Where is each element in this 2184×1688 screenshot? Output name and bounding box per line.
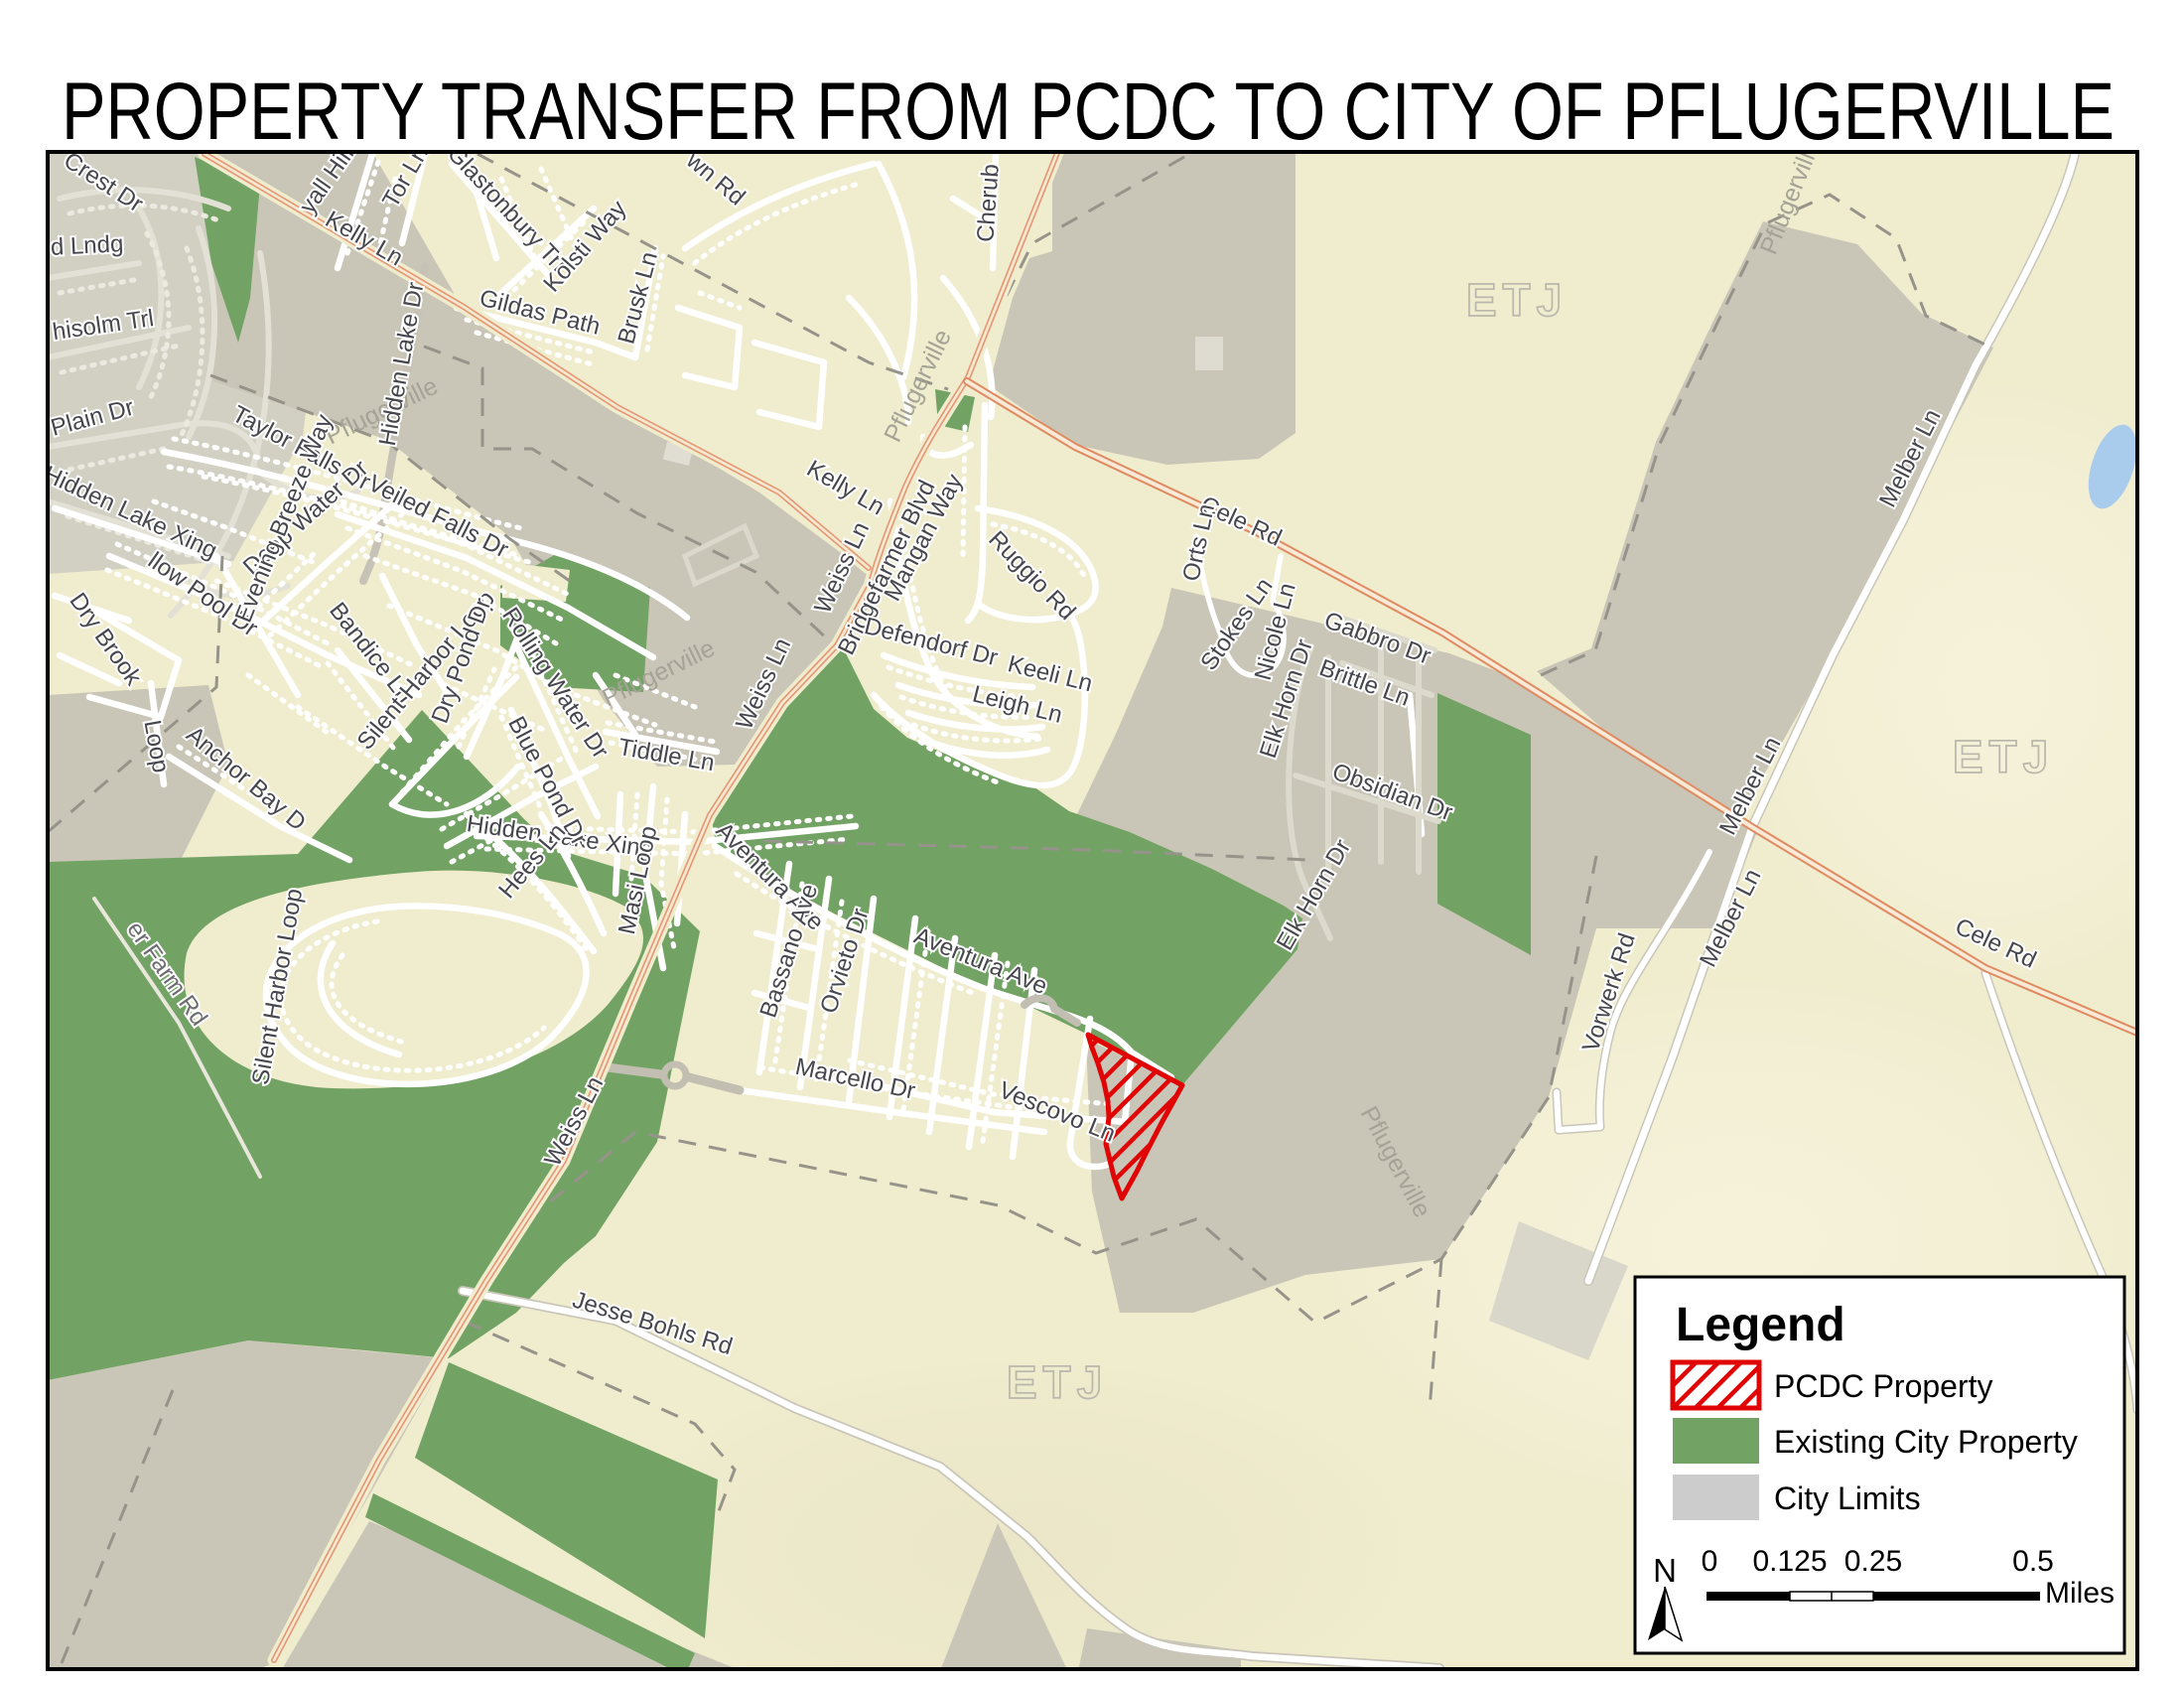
svg-text:ETJ: ETJ: [1466, 274, 1568, 326]
svg-text:PCDC Property: PCDC Property: [1774, 1368, 1993, 1404]
svg-text:0.5: 0.5: [2012, 1545, 2054, 1578]
svg-text:Cherub: Cherub: [972, 163, 1004, 242]
svg-text:Legend: Legend: [1676, 1299, 1845, 1351]
svg-text:ETJ: ETJ: [1007, 1356, 1108, 1408]
svg-text:Miles: Miles: [2045, 1577, 2115, 1610]
svg-text:0.25: 0.25: [1844, 1545, 1902, 1578]
svg-text:d Lndg: d Lndg: [50, 230, 124, 261]
svg-text:N: N: [1653, 1552, 1677, 1589]
svg-text:City Limits: City Limits: [1774, 1480, 1921, 1516]
svg-text:ETJ: ETJ: [1953, 731, 2054, 782]
svg-text:0.125: 0.125: [1752, 1545, 1827, 1578]
svg-text:Existing City Property: Existing City Property: [1774, 1424, 2078, 1460]
svg-text:PROPERTY TRANSFER FROM PCDC TO: PROPERTY TRANSFER FROM PCDC TO CITY OF P…: [62, 67, 2115, 157]
svg-text:0: 0: [1702, 1545, 1718, 1578]
